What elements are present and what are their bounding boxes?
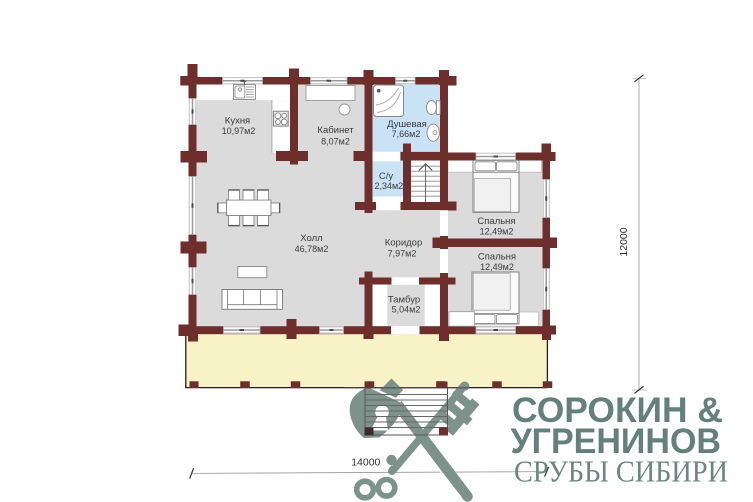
svg-text:12,49м2: 12,49м2 (480, 262, 514, 272)
svg-text:12000: 12000 (618, 227, 630, 256)
svg-text:46,78м2: 46,78м2 (295, 244, 329, 254)
svg-text:СРУБЫ СИБИРИ: СРУБЫ СИБИРИ (514, 454, 728, 489)
svg-text:2,34м2: 2,34м2 (374, 181, 403, 191)
svg-text:Кухня: Кухня (225, 116, 250, 127)
svg-text:5,04м2: 5,04м2 (392, 305, 421, 315)
svg-text:Кабинет: Кабинет (317, 125, 354, 136)
svg-text:Холл: Холл (300, 233, 322, 244)
svg-text:Спальня: Спальня (477, 216, 515, 227)
svg-text:Спальня: Спальня (478, 252, 516, 263)
svg-text:10,97м2: 10,97м2 (222, 126, 256, 136)
svg-text:12,49м2: 12,49м2 (480, 227, 514, 237)
svg-text:Коридор: Коридор (385, 238, 423, 249)
svg-text:7,66м2: 7,66м2 (392, 129, 421, 139)
svg-text:7,97м2: 7,97м2 (388, 249, 417, 259)
svg-text:8,07м2: 8,07м2 (321, 137, 350, 147)
svg-text:14000: 14000 (351, 457, 380, 469)
